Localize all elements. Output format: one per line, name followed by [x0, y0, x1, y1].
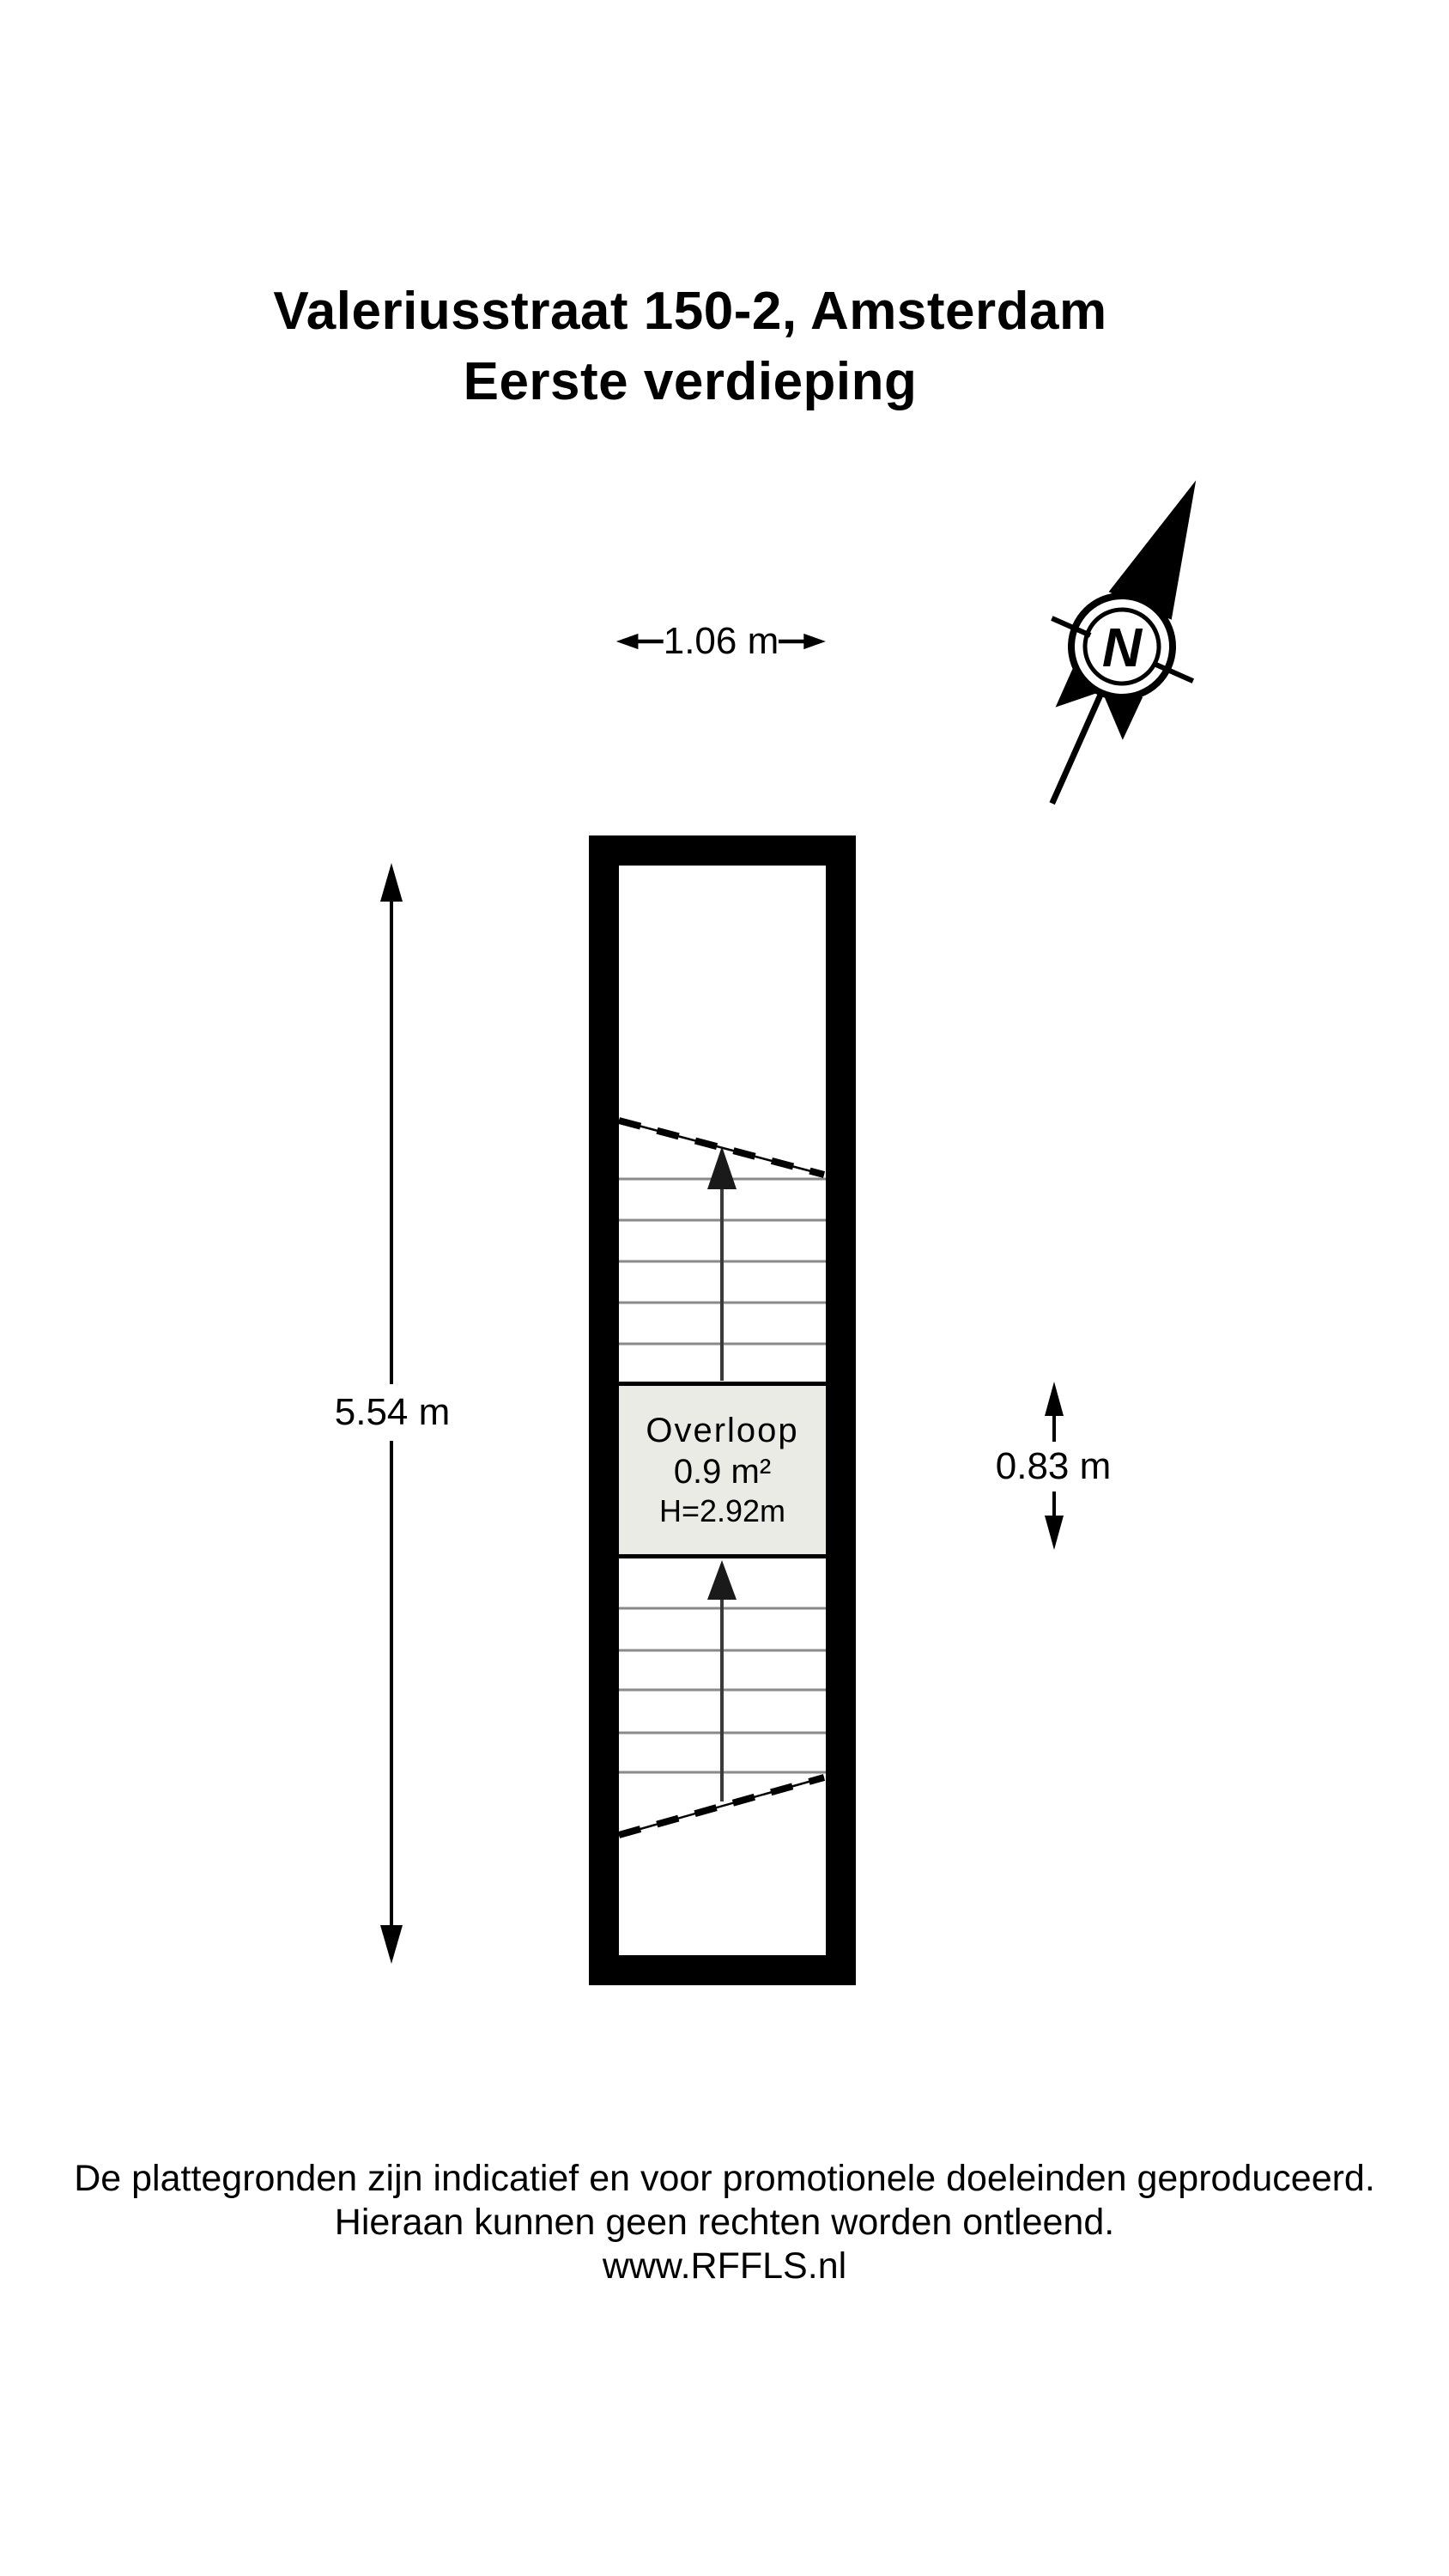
floorplan-walls: Overloop 0.9 m² H=2.92m [589, 835, 856, 1985]
room-area: 0.9 m² [674, 1452, 771, 1492]
dimension-width-label: 1.06 m [664, 620, 779, 663]
dimension-width: 1.06 m [615, 620, 828, 663]
page-title: Valeriusstraat 150-2, Amsterdam Eerste v… [0, 276, 1415, 417]
disclaimer-line-1: De plattegronden zijn indicatief en voor… [0, 2157, 1449, 2201]
room-name: Overloop [646, 1409, 798, 1452]
dimension-height-label: 5.54 m [330, 1384, 456, 1441]
footer-disclaimer: De plattegronden zijn indicatief en voor… [0, 2157, 1449, 2288]
room-ceiling-height: H=2.92m [659, 1492, 785, 1531]
title-floor: Eerste verdieping [0, 347, 1415, 417]
disclaimer-line-2: Hieraan kunnen geen rechten worden ontle… [0, 2201, 1449, 2245]
room-overloop: Overloop 0.9 m² H=2.92m [619, 1382, 826, 1558]
title-address: Valeriusstraat 150-2, Amsterdam [0, 276, 1415, 347]
floorplan-interior: Overloop 0.9 m² H=2.92m [619, 866, 826, 1955]
compass-north-arrow-icon: N [979, 464, 1253, 824]
compass-north-label: N [1102, 617, 1143, 678]
dimension-arrow-right-icon [779, 626, 828, 657]
footer-website: www.RFFLS.nl [0, 2245, 1449, 2288]
floorplan-page: Valeriusstraat 150-2, Amsterdam Eerste v… [0, 0, 1449, 2576]
dimension-landing-label: 0.83 m [989, 1442, 1119, 1492]
dimension-arrow-left-icon [615, 626, 664, 657]
